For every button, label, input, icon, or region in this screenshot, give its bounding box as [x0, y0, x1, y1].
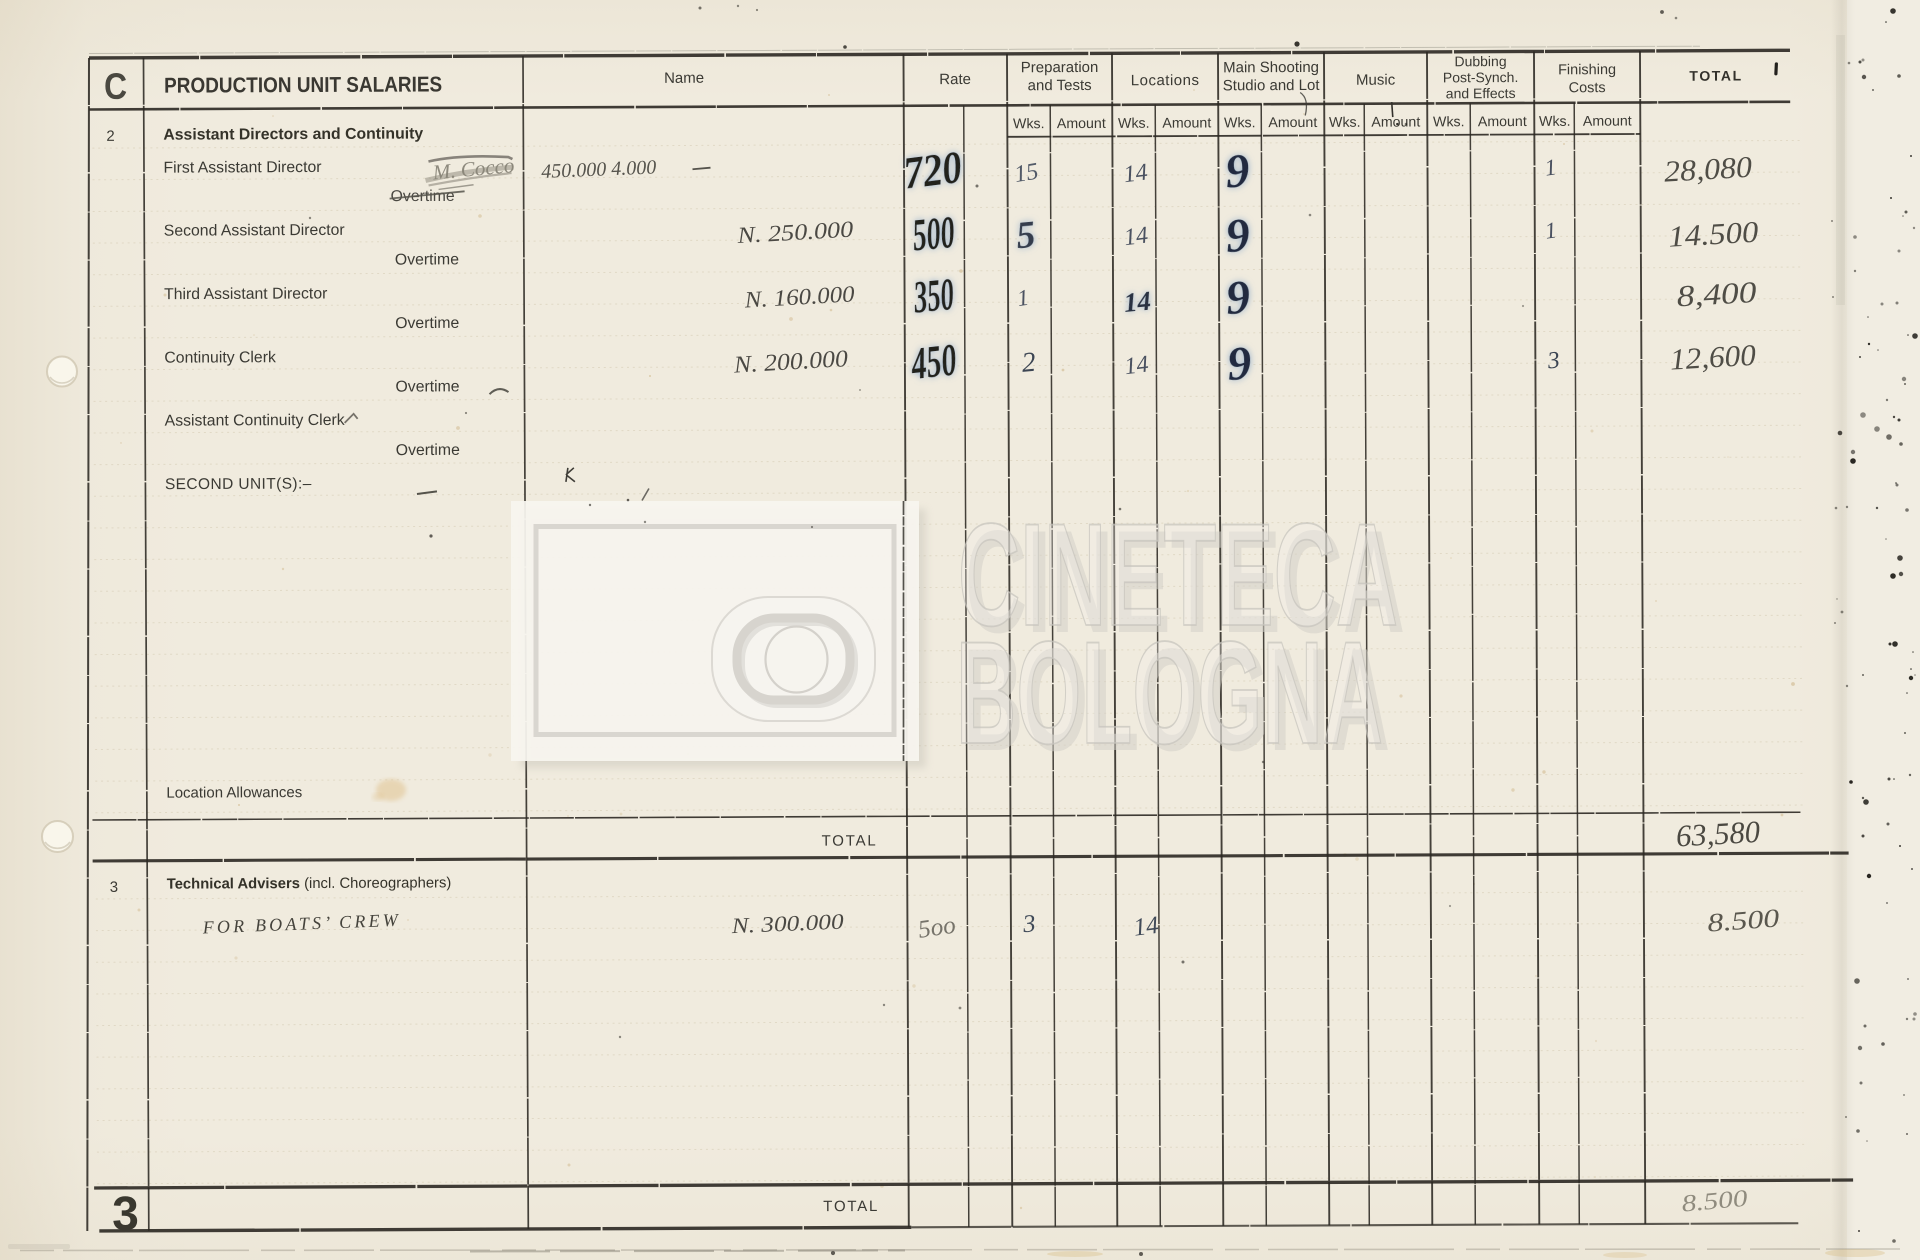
svg-text:and Effects: and Effects: [1446, 85, 1516, 101]
svg-text:Amount: Amount: [1162, 115, 1211, 131]
svg-text:2: 2: [106, 128, 114, 145]
svg-text:2: 2: [1020, 347, 1037, 379]
svg-text:Music: Music: [1356, 72, 1396, 89]
svg-text:Wks.: Wks.: [1013, 116, 1045, 132]
svg-text:Wks.: Wks.: [1118, 116, 1150, 132]
svg-text:14: 14: [1122, 159, 1149, 188]
svg-text:Overtime: Overtime: [396, 442, 460, 459]
svg-text:Rate: Rate: [939, 71, 971, 88]
svg-text:Amount: Amount: [1478, 114, 1527, 130]
svg-text:Overtime: Overtime: [395, 378, 459, 395]
svg-text:Assistant Continuity Clerk: Assistant Continuity Clerk: [165, 412, 345, 430]
svg-text:Amount: Amount: [1371, 114, 1420, 130]
svg-text:63,580: 63,580: [1675, 814, 1761, 854]
svg-text:15: 15: [1012, 159, 1040, 189]
svg-text:Main Shooting: Main Shooting: [1223, 59, 1319, 76]
svg-text:Dubbing: Dubbing: [1454, 53, 1506, 69]
svg-text:3: 3: [110, 879, 118, 896]
svg-text:Technical Advisers (incl. Chor: Technical Advisers (incl. Choreographers…: [167, 875, 452, 892]
svg-text:Location Allowances: Location Allowances: [166, 784, 302, 802]
svg-text:Locations: Locations: [1131, 72, 1200, 89]
svg-text:720: 720: [901, 141, 965, 199]
svg-text:Name: Name: [664, 70, 704, 87]
svg-text:First Assistant Director: First Assistant Director: [163, 159, 321, 177]
svg-text:9: 9: [1224, 209, 1252, 264]
svg-text:Wks.: Wks.: [1329, 115, 1361, 131]
svg-text:14.500: 14.500: [1667, 216, 1759, 254]
svg-text:Amount: Amount: [1057, 116, 1106, 132]
svg-text:Overtime: Overtime: [395, 251, 459, 268]
svg-text:and Tests: and Tests: [1028, 77, 1092, 94]
svg-text:450.000 4.000: 450.000 4.000: [541, 156, 657, 183]
svg-text:14: 14: [1122, 222, 1149, 251]
svg-text:TOTAL: TOTAL: [823, 1198, 879, 1215]
svg-text:14: 14: [1123, 351, 1150, 380]
svg-text:Overtime: Overtime: [391, 188, 455, 205]
svg-text:9: 9: [1225, 337, 1253, 392]
svg-text:450: 450: [908, 333, 959, 389]
svg-text:3: 3: [1021, 910, 1037, 938]
svg-text:Third Assistant Director: Third Assistant Director: [164, 285, 327, 303]
svg-text:14: 14: [1132, 912, 1160, 942]
svg-text:5oo: 5oo: [916, 912, 957, 944]
svg-text:Overtime: Overtime: [395, 315, 459, 332]
svg-text:9: 9: [1224, 271, 1252, 326]
svg-text:9: 9: [1224, 144, 1252, 199]
svg-text:Wks.: Wks.: [1224, 115, 1256, 131]
svg-text:Studio and Lot: Studio and Lot: [1223, 77, 1321, 94]
svg-text:TOTAL: TOTAL: [822, 832, 878, 849]
svg-text:Amount: Amount: [1268, 115, 1317, 131]
svg-text:Wks.: Wks.: [1433, 114, 1465, 130]
svg-text:Continuity Clerk: Continuity Clerk: [164, 349, 276, 367]
svg-text:BOLOGNA: BOLOGNA: [956, 611, 1383, 774]
svg-text:5: 5: [1014, 214, 1037, 258]
svg-text:C: C: [104, 66, 127, 107]
svg-text:PRODUCTION UNIT SALARIES: PRODUCTION UNIT SALARIES: [164, 72, 442, 97]
svg-text:350: 350: [911, 268, 956, 323]
svg-text:Wks.: Wks.: [1539, 114, 1571, 130]
svg-text:Preparation: Preparation: [1021, 59, 1099, 76]
svg-text:Costs: Costs: [1569, 80, 1606, 96]
svg-text:8.500: 8.500: [1706, 903, 1780, 937]
svg-text:500: 500: [910, 206, 956, 261]
svg-text:28,080: 28,080: [1663, 151, 1753, 189]
svg-text:Assistant Directors and Contin: Assistant Directors and Continuity: [163, 125, 423, 143]
svg-text:14: 14: [1123, 286, 1153, 318]
svg-text:8,400: 8,400: [1676, 276, 1758, 313]
svg-text:N. 300.000: N. 300.000: [730, 909, 844, 938]
svg-text:Second Assistant Director: Second Assistant Director: [164, 222, 345, 240]
svg-text:3: 3: [112, 1188, 139, 1241]
svg-text:Finishing: Finishing: [1558, 62, 1616, 78]
svg-text:SECOND UNIT(S):–: SECOND UNIT(S):–: [165, 475, 312, 493]
svg-text:TOTAL: TOTAL: [1689, 67, 1742, 83]
svg-text:12,600: 12,600: [1669, 339, 1757, 377]
svg-text:Amount: Amount: [1583, 113, 1632, 129]
svg-text:Post-Synch.: Post-Synch.: [1443, 69, 1519, 85]
